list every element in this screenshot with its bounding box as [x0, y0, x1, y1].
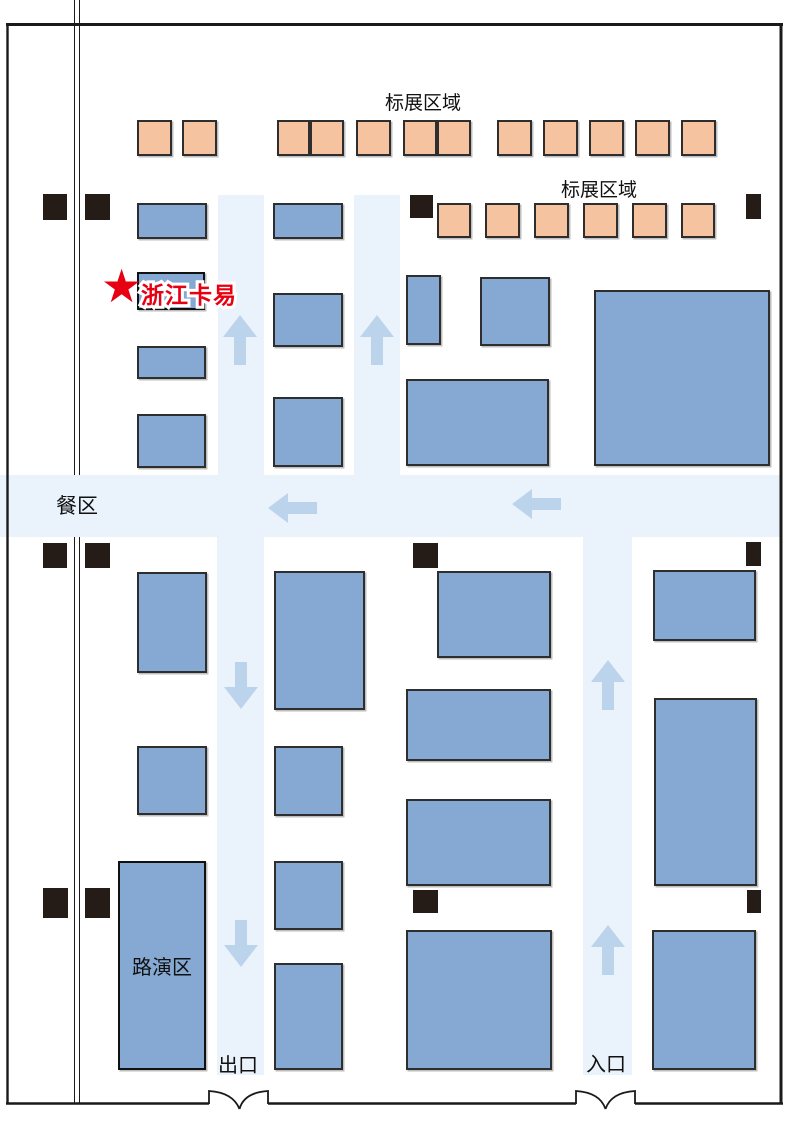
aisle-corridor	[217, 537, 264, 1075]
booth	[137, 746, 207, 815]
booth	[273, 397, 343, 467]
standard-booth	[137, 120, 172, 156]
booth	[274, 861, 343, 930]
booth	[137, 572, 207, 673]
standard-booth-area-label-top: 标展区域	[385, 88, 461, 115]
aisle-corridor	[0, 475, 781, 537]
pillar	[85, 543, 110, 568]
pillar	[413, 890, 438, 913]
standard-booth	[182, 120, 217, 156]
exit-label: 出口	[218, 1049, 258, 1078]
direction-arrow-up-icon	[591, 925, 625, 975]
direction-arrow-left-icon	[268, 493, 317, 523]
direction-arrow-up-icon	[591, 660, 625, 710]
pillar	[413, 543, 438, 568]
direction-arrow-down-icon	[224, 920, 258, 967]
standard-booth	[356, 120, 391, 156]
booth	[652, 930, 756, 1070]
direction-arrow-down-icon	[224, 662, 258, 709]
direction-arrow-left-icon	[512, 489, 561, 519]
booth	[406, 799, 551, 886]
standard-booth	[681, 203, 715, 238]
standard-booth	[635, 120, 670, 156]
pillar	[43, 543, 67, 568]
standard-booth	[534, 203, 569, 238]
booth	[274, 963, 343, 1070]
booth	[406, 275, 441, 345]
direction-arrow-up-icon	[223, 315, 257, 365]
standard-booth-area-label-right: 标展区域	[561, 175, 637, 202]
booth	[137, 203, 207, 239]
roadshow-area-label: 路演区	[118, 861, 206, 1070]
standard-booth	[681, 120, 716, 156]
booth	[406, 930, 552, 1070]
direction-arrow-up-icon	[360, 315, 394, 365]
booth	[653, 570, 756, 641]
pillar	[746, 194, 761, 219]
pillar	[43, 888, 68, 918]
standard-booth	[485, 203, 520, 238]
entrance-label: 入口	[586, 1048, 626, 1077]
pillar	[85, 888, 110, 918]
pillar	[746, 542, 761, 566]
standard-booth	[497, 120, 532, 156]
standard-booth	[310, 120, 344, 156]
booth	[137, 414, 206, 468]
pillar	[85, 194, 110, 220]
booth	[273, 203, 343, 239]
booth	[594, 290, 770, 466]
standard-booth	[632, 203, 667, 238]
standard-booth	[403, 120, 437, 156]
exhibition-floorplan: 标展区域 标展区域 餐区 路演区 出口 入口 ★ 浙江卡易 浙江卡易	[0, 0, 794, 1121]
booth	[437, 571, 551, 658]
pillar	[410, 195, 433, 218]
booth	[137, 346, 206, 379]
booth	[274, 746, 343, 816]
booth	[406, 689, 551, 761]
booth	[654, 698, 757, 886]
pillar	[747, 890, 761, 913]
highlighted-company-label: 浙江卡易 浙江卡易	[141, 276, 237, 310]
standard-booth	[583, 203, 618, 238]
dining-area-label: 餐区	[56, 490, 98, 520]
booth	[274, 571, 365, 710]
highlighted-company-text: 浙江卡易	[141, 282, 237, 308]
booth	[406, 379, 549, 466]
booth	[273, 293, 343, 347]
entrance-door-icon	[576, 1091, 635, 1109]
double-wall-line	[74, 0, 80, 1104]
standard-booth	[589, 120, 624, 156]
star-icon: ★	[101, 263, 142, 309]
aisle-corridor	[583, 537, 632, 1075]
booth	[480, 277, 550, 346]
standard-booth	[543, 120, 578, 156]
standard-booth	[277, 120, 310, 156]
exit-door-icon	[209, 1091, 268, 1109]
pillar	[43, 194, 67, 220]
standard-booth	[437, 120, 471, 156]
standard-booth	[437, 203, 471, 238]
